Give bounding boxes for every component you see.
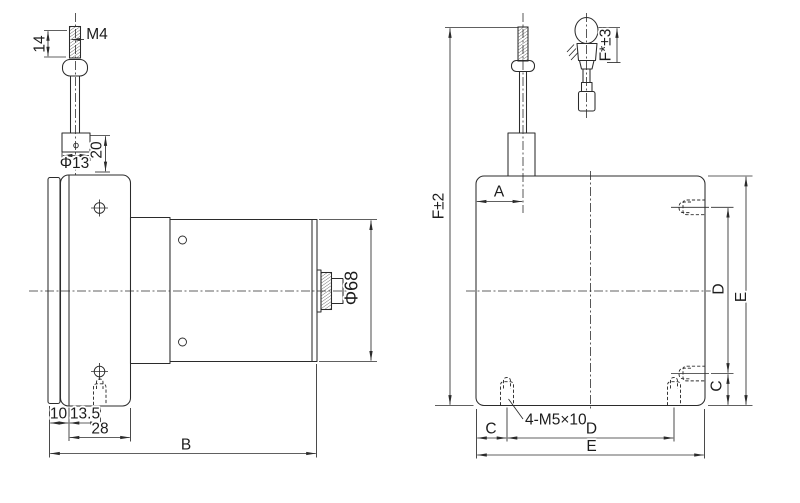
dim-label-bushing-height: 20 <box>89 141 106 159</box>
sensor-body <box>131 218 318 364</box>
dim-label-fitting-length: F*±3 <box>598 29 615 62</box>
back-plate <box>48 178 60 404</box>
dim-label-side-hole-to-edge: C <box>709 380 726 391</box>
dim-label-wire-to-edge: A <box>494 184 505 201</box>
fitting-cone-upper <box>577 44 597 61</box>
body-hole-bottom <box>179 338 187 346</box>
dim-label-flange-width: 28 <box>91 421 108 438</box>
body-step <box>131 218 171 364</box>
wire-rod-front <box>508 27 535 176</box>
dim-label-bottom-hole-to-edge: C <box>485 421 496 438</box>
dim-label-body-diameter: Φ68 <box>341 271 361 305</box>
crimp-marks <box>567 45 578 61</box>
right-view: F±2 A F*±3 D E C <box>431 13 753 459</box>
technical-drawing: 14 M4 Φ13 20 Φ68 10 13.5 <box>0 0 800 503</box>
threaded-stud <box>70 27 81 59</box>
ball-fitting <box>567 13 598 118</box>
dim-label-total-length: B <box>181 437 191 454</box>
bushing-hole <box>74 143 79 148</box>
body-hole-top <box>179 236 187 244</box>
dim-label-overall-height: F±2 <box>431 193 448 220</box>
rod-collar <box>63 60 88 77</box>
wire-rod-side <box>62 27 90 153</box>
dim-label-thread-length: 14 <box>32 35 49 53</box>
dim-label-side-hole-spacing: D <box>711 283 728 294</box>
dim-label-side-plate-height: E <box>733 292 750 302</box>
drawing-canvas: 14 M4 Φ13 20 Φ68 10 13.5 <box>0 0 800 503</box>
wire-bushing-front <box>508 133 535 176</box>
wire-bushing-block <box>62 133 90 152</box>
dim-label-back-plate-thickness: 10 <box>50 406 68 423</box>
left-view: 14 M4 Φ13 20 Φ68 10 13.5 <box>29 13 377 458</box>
dim-label-bottom-plate-width: E <box>586 438 596 455</box>
dim-label-bottom-hole-spacing: D <box>586 421 597 438</box>
dim-label-bushing-diameter: Φ13 <box>60 155 90 172</box>
mounting-holes-callout: 4-M5×10 <box>525 412 587 429</box>
flange-plates <box>48 175 131 406</box>
thread-spec-label: M4 <box>86 26 108 43</box>
rod-shaft <box>71 76 80 133</box>
body-cylinder <box>170 220 317 362</box>
